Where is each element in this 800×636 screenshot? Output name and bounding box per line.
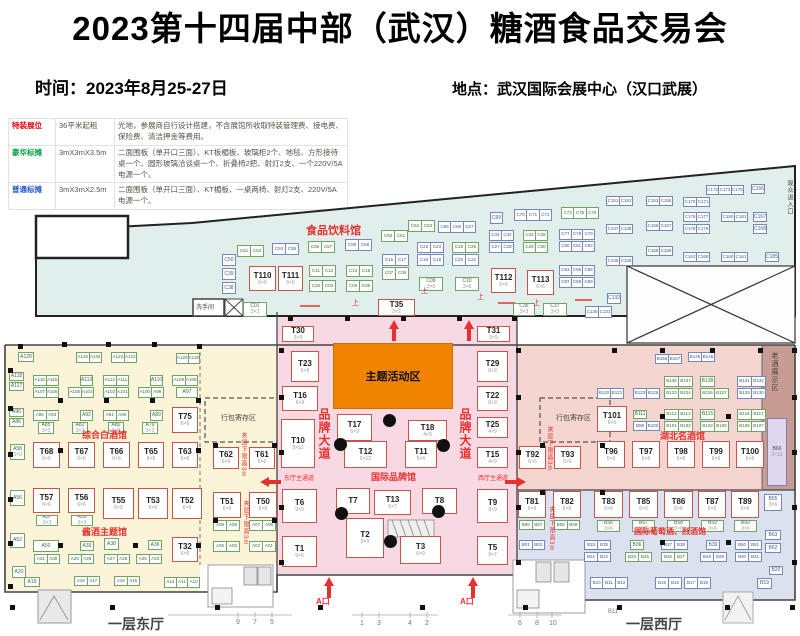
pillar-icon — [420, 605, 425, 610]
pillar-icon — [152, 342, 157, 347]
map-label: 1 — [360, 620, 364, 627]
booth-C51-C52: C51C52 — [237, 245, 264, 257]
booth-T30: T303×9 — [282, 326, 314, 342]
booth-A31-A30: A31A30 — [34, 554, 60, 564]
booth-T66: T666×6 — [103, 442, 130, 468]
pillar-icon — [516, 348, 521, 353]
booth-T1: T19×6 — [282, 536, 317, 567]
booth-A117: A117 — [9, 382, 24, 391]
booth-B33-B35: B33B35 — [584, 540, 611, 550]
map-label: A口 — [460, 598, 474, 606]
booth-C69: C69 — [490, 212, 503, 224]
booth-B62: B62 — [765, 543, 781, 553]
map-label: 夹层下限高3m — [240, 432, 246, 477]
booth-T62: T626×6 — [213, 447, 239, 469]
booth-T11: T116×6 — [405, 441, 437, 468]
booth-C80-C81-C82: C80C81C82 — [559, 241, 595, 252]
pillar-icon — [660, 414, 665, 419]
booth-A50: A50 — [33, 540, 59, 552]
booth-T23: T236×9 — [291, 351, 319, 382]
booth-C168: C168 — [753, 224, 767, 234]
booth-C53-C55: C53C55 — [272, 243, 299, 255]
map-label: 夹层下限高3m — [242, 500, 248, 545]
booth-C158-C159: C158C159 — [646, 246, 673, 256]
booth-A39: A39 — [80, 541, 94, 551]
booth-A113: A113 — [80, 375, 93, 386]
booth-A109-A108: A109A108 — [172, 375, 198, 386]
booth-A36: A36 — [148, 540, 162, 550]
booth-T51: T516×6 — [213, 492, 241, 518]
pillar-icon — [62, 342, 67, 347]
map-label: 湖北名酒馆 — [660, 432, 705, 441]
map-label: 一层西厅 — [626, 617, 682, 631]
booth-C166: C166 — [751, 184, 765, 194]
booth-C163-C165: C163C165 — [683, 252, 710, 262]
booth-A116-A115: A116A115 — [33, 375, 59, 386]
map-label: 行包寄存区 — [556, 415, 591, 422]
pillar-icon — [8, 584, 13, 589]
map-label: 7 — [253, 619, 257, 626]
booth-A55: A553×3 — [71, 515, 93, 526]
pillar-icon — [279, 348, 284, 353]
booth-T3: T36×9 — [400, 536, 441, 564]
booth-C176-C177: C176C177 — [683, 212, 710, 222]
booth-T16: T166×9 — [282, 386, 318, 411]
booth-A95-A93: A95A93 — [33, 410, 59, 421]
booth-T97: T976×6 — [632, 441, 660, 468]
pillar-icon — [540, 443, 545, 448]
booth-T31: T313×9 — [477, 326, 510, 342]
pillar-icon — [516, 560, 521, 565]
booth-B21-B22: B21B22 — [584, 552, 611, 562]
pillar-icon — [104, 398, 109, 403]
pillar-icon — [540, 490, 545, 495]
floor-plan: 主题活动区 C50C39C38C51C52C53C55C56C57C58C59C… — [0, 160, 800, 636]
booth-T13: T136×7 — [374, 490, 411, 515]
booth-T89: T896×6 — [731, 491, 759, 518]
pillar-icon — [792, 505, 797, 510]
pillar-icon — [196, 543, 201, 548]
pillar-icon — [272, 518, 277, 523]
booth-A123-A122: A123A122 — [111, 352, 137, 363]
booth-B17-B18: B17B18 — [684, 577, 711, 589]
booth-T98: T986×6 — [667, 441, 695, 468]
booth-T63: T636×6 — [172, 442, 198, 468]
booth-T52: T526×9 — [172, 488, 202, 519]
grid-ruler-lines — [168, 612, 562, 618]
pillar-icon — [710, 348, 715, 353]
booth-B99-B100: B99B100 — [633, 421, 660, 431]
map-label: 东厅主通道 — [284, 476, 314, 482]
booth-A05-A03: A05A03 — [213, 541, 240, 552]
direction-arrow-icon — [504, 477, 526, 487]
booth-C77-C78-C79: C77C78C79 — [559, 229, 595, 240]
booth-A126-A125: A126A125 — [76, 352, 102, 363]
booth-C02-C03: C02C03 — [309, 280, 336, 292]
booth-T67: T676×6 — [68, 442, 95, 468]
booth-T17: T176×9 — [337, 414, 372, 441]
booth-C36: C363×3 — [513, 303, 535, 316]
booth-T29: T296×9 — [477, 351, 508, 382]
column-icon — [432, 505, 445, 518]
booth-C170-C171: C170C171 — [683, 197, 710, 207]
booth-C73-C75-C76: C73C75C76 — [561, 207, 599, 219]
map-label: 8 — [535, 620, 539, 627]
booth-C60-C61: C60C61 — [381, 230, 408, 242]
booth-A79: A793×3 — [142, 422, 158, 434]
booth-A92: A92 — [80, 410, 93, 421]
map-label: 4 — [408, 620, 412, 627]
booth-T112: T1126×6 — [491, 268, 516, 293]
booth-C160-C161: C160C161 — [721, 252, 748, 262]
booth-A85: A853×3 — [38, 422, 54, 434]
map-label: 夹层下限高3m — [548, 506, 554, 551]
booth-B133-B134: B133B134 — [664, 388, 693, 399]
map-label: 3 — [377, 620, 381, 627]
booth-B116-B117: B116B117 — [737, 409, 766, 420]
pillar-icon — [279, 560, 284, 565]
booth-T6: T69×9 — [282, 489, 317, 523]
booth-T53: T536×9 — [138, 488, 168, 519]
booth-C11-C12: C11C12 — [309, 265, 336, 277]
booth-T9: T99×9 — [477, 489, 508, 523]
booth-T83: T836×6 — [594, 491, 623, 518]
booth-A27-A26: A27A26 — [104, 554, 130, 564]
booth-B23-B25: B23B25 — [625, 552, 652, 562]
pillar-icon — [512, 316, 517, 321]
pillar-icon — [279, 395, 284, 400]
booth-C87-C88-C89: C87C88C89 — [559, 277, 595, 288]
booth-A118: A118 — [9, 372, 24, 381]
map-label: 5 — [270, 619, 274, 626]
booth-C151-C152: C151C152 — [606, 196, 633, 206]
pillar-icon — [58, 543, 63, 548]
pillar-icon — [8, 406, 13, 411]
booth-C156-C157: C156C157 — [646, 221, 673, 231]
booth-T75: T756×6 — [172, 407, 198, 433]
column-icon — [383, 414, 396, 427]
booth-C16-C17: C16C17 — [382, 254, 409, 266]
booth-B60: B603×6 — [734, 520, 757, 532]
pillar-icon — [8, 368, 13, 373]
pillar-icon — [792, 348, 797, 353]
direction-arrow-icon — [468, 577, 478, 599]
pillar-icon — [110, 605, 115, 610]
pillar-icon — [279, 450, 284, 455]
booth-T82: T826×6 — [553, 491, 581, 518]
pillar-icon — [758, 348, 763, 353]
booth-C70-C71-C72: C70C71C72 — [514, 209, 552, 221]
pillar-icon — [106, 342, 111, 347]
booth-T113: T1136×6 — [527, 270, 554, 295]
booth-B28-B29: B28B29 — [700, 552, 727, 562]
pillar-icon — [213, 443, 218, 448]
booth-B136-B137: B136B137 — [664, 376, 693, 387]
booth-C65-C66-C67: C65C66C67 — [438, 221, 476, 233]
column-icon — [437, 439, 450, 452]
pillar-icon — [133, 543, 138, 548]
east-core-rooms — [208, 565, 273, 607]
booth-T85: T856×6 — [629, 491, 658, 518]
booth-T55: T556×9 — [103, 488, 134, 519]
booth-A128: A128 — [18, 352, 34, 362]
booth-A02-A01: A02A01 — [249, 541, 276, 552]
pillar-icon — [660, 540, 665, 545]
pillar-icon — [792, 450, 797, 455]
pillar-icon — [792, 395, 797, 400]
cross-box-small — [225, 299, 243, 316]
booth-T35: T352×2 — [378, 299, 415, 316]
pillar-icon — [58, 398, 63, 403]
map-label: 上 — [477, 294, 484, 301]
booth-C130-C131: C130C131 — [585, 306, 612, 318]
pillar-icon — [196, 398, 201, 403]
booth-C29-C30: C29C30 — [523, 242, 548, 253]
direction-arrow-icon — [389, 320, 399, 342]
booth-C07-C08: C07C08 — [382, 267, 409, 280]
pillar-icon — [457, 316, 462, 321]
map-label: 食品饮料馆 — [306, 226, 361, 237]
booth-T5: T59×7 — [477, 536, 508, 565]
booth-T2: T29×9 — [346, 518, 384, 558]
booth-B112-B113: B112B113 — [664, 409, 693, 420]
booth-C13-C15: C13C15 — [346, 265, 373, 277]
booth-C38: C38 — [222, 282, 236, 294]
booth-T65: T656×6 — [138, 442, 164, 468]
booth-A102-A101: A102A101 — [103, 387, 129, 398]
pillar-icon — [523, 605, 528, 610]
booth-C153-C155: C153C155 — [646, 196, 673, 206]
booth-A12-A11-A10: A12A11A10 — [164, 577, 200, 588]
map-label: 酱酒主题馆 — [82, 528, 127, 537]
booth-B36: B36 — [630, 540, 644, 550]
booth-T87: T876×6 — [698, 491, 726, 518]
pillar-icon — [660, 348, 665, 353]
booth-B111: B111 — [633, 410, 647, 419]
pillar-icon — [725, 605, 730, 610]
booth-C137-C138: C137C138 — [606, 224, 633, 234]
booth-T111: T1116×6 — [278, 266, 303, 291]
pillar-icon — [792, 560, 797, 565]
booth-C83-C85-C86: C83C85C86 — [559, 265, 595, 276]
pillar-icon — [318, 605, 323, 610]
booth-A29-A28: A29A28 — [68, 554, 94, 564]
booth-C39: C39 — [222, 268, 236, 280]
booth-C22-C23: C22C23 — [417, 242, 444, 253]
map-label: 夹层下限高3m — [546, 426, 552, 471]
map-label: 9 — [236, 619, 240, 626]
booth-T22: T226×9 — [477, 386, 508, 411]
map-label: 观众进入口 — [786, 180, 792, 215]
booth-B20: B20 — [769, 566, 783, 575]
pillar-icon — [612, 348, 617, 353]
booth-B129-B130: B129B130 — [737, 388, 766, 399]
column-icon — [334, 438, 347, 451]
pillar-icon — [215, 605, 220, 610]
booth-C58-C59: C58C59 — [345, 239, 372, 251]
booth-T93: T936×6 — [554, 446, 581, 469]
pillar-icon — [10, 605, 15, 610]
booth-A86: A86 — [9, 418, 24, 427]
main-activity-zone: 主题活动区 — [333, 343, 453, 409]
pillar-icon — [150, 398, 155, 403]
booth-T81: T816×6 — [518, 491, 546, 518]
map-label: 上 — [352, 300, 359, 307]
booth-B10-B11-B12: B10B11B12 — [590, 577, 628, 589]
booth-A120-A119: A120A119 — [176, 353, 200, 364]
booth-B15-B16: B15B16 — [655, 577, 682, 589]
booth-C50: C50 — [222, 254, 236, 266]
booth-A89: A89 — [150, 410, 163, 421]
booth-C62-C63: C62C63 — [408, 220, 435, 232]
booth-B145-B146: B145B146 — [688, 352, 715, 362]
pillar-icon — [790, 605, 795, 610]
pillar-icon — [196, 448, 201, 453]
booth-B115: B115 — [700, 409, 715, 420]
booth-C167: C167 — [753, 212, 767, 222]
booth-B156-B157: B156B157 — [655, 354, 682, 364]
column-icon — [384, 535, 397, 548]
map-label: 10 — [549, 620, 557, 627]
map-label: 6 — [518, 620, 522, 627]
escalator-icon — [388, 520, 434, 537]
booth-B06-B07: B06B07 — [519, 520, 545, 530]
booth-C172-C173-C175: C172C173C175 — [706, 185, 744, 195]
booth-T10: T109×12 — [281, 419, 315, 468]
booth-A97: A97 — [176, 387, 198, 398]
map-label: 一层东厅 — [108, 617, 164, 631]
booth-B50-B51: B50B51 — [735, 540, 762, 550]
booth-T32: T326×6 — [172, 537, 198, 562]
pillar-icon — [8, 541, 13, 546]
booth-C185: C185 — [765, 252, 779, 262]
booth-C05-C06: C05C06 — [346, 280, 373, 292]
booth-C25-C26: C25C26 — [452, 242, 479, 253]
map-label: 上 — [533, 300, 540, 307]
booth-T86: T866×6 — [664, 491, 693, 518]
booth-T57: T576×6 — [33, 488, 60, 513]
booth-C27-C28: C27C28 — [489, 242, 514, 253]
pillar-icon — [8, 497, 13, 502]
booth-B37-B38: B37B38 — [661, 540, 688, 550]
booth-C31-C32: C31C32 — [489, 230, 514, 241]
booth-C33-C35: C33C35 — [523, 230, 548, 241]
booth-B138: B138 — [700, 376, 715, 387]
booth-B123-B125: B123B125 — [633, 388, 660, 399]
booth-T61: T616×6 — [249, 447, 275, 469]
booth-T92: T926×6 — [519, 446, 546, 469]
food-hall-room — [36, 216, 128, 258]
booth-T99: T996×6 — [702, 441, 730, 468]
pillar-icon — [726, 540, 731, 545]
map-label: 国际葡萄酒、烈酒馆 — [634, 528, 706, 536]
map-label: 国际品牌馆 — [371, 473, 416, 482]
pillar-icon — [600, 490, 605, 495]
booth-T110: T1106×6 — [249, 266, 276, 291]
booth-A57: A573×3 — [36, 515, 58, 526]
pillar-icon — [726, 414, 731, 419]
pillar-icon — [58, 448, 63, 453]
booth-C132: C132 — [607, 293, 621, 304]
exhibition-map-page: 2023第十四届中部（武汉）糖酒食品交易会 时间：2023年8月25-27日 地… — [0, 0, 800, 636]
pillar-icon — [600, 443, 605, 448]
booth-T50: T506×6 — [249, 492, 277, 518]
pillar-icon — [272, 443, 277, 448]
pillar-icon — [516, 505, 521, 510]
east-entrance-canopy — [38, 590, 71, 623]
pillar-icon — [279, 505, 284, 510]
booth-C18-C19: C18C19 — [417, 254, 444, 266]
booth-B63: B63 — [765, 530, 781, 540]
booth-A91-A90: A91A90 — [103, 410, 129, 421]
pillar-icon — [18, 344, 23, 349]
booth-B106-B107: B106B107 — [737, 421, 766, 432]
booth-C135-C136: C135C136 — [606, 256, 633, 266]
booth-C180-C181: C180C181 — [721, 212, 748, 222]
booth-A19: A19 — [24, 577, 40, 587]
booth-A100-A99: A100A99 — [138, 387, 164, 398]
map-label: 品牌大道 — [459, 408, 471, 460]
construction-area-icon — [627, 266, 795, 343]
booth-B26-B27: B26B27 — [661, 552, 688, 562]
booth-C56-C57: C56C57 — [308, 241, 335, 253]
column-icon — [335, 507, 348, 520]
booth-B131-B132: B131B132 — [737, 376, 766, 387]
direction-arrow-icon — [260, 477, 282, 487]
map-label: 品牌大道 — [318, 408, 330, 460]
booth-B66: B663×12 — [767, 418, 787, 486]
booth-B120-B121: B120B121 — [597, 388, 624, 399]
pillar-icon — [213, 518, 218, 523]
pillar-icon — [8, 452, 13, 457]
booth-A105-A103: A105A103 — [68, 387, 94, 398]
booth-C20-C21: C20C21 — [452, 254, 479, 266]
booth-A112-A111: A112A111 — [103, 375, 129, 386]
booth-T101: T1016×6 — [597, 406, 627, 432]
booth-B30-B31: B30B31 — [735, 552, 762, 562]
booth-A18-A17: A18A17 — [74, 576, 100, 586]
booth-A110: A110 — [150, 375, 163, 386]
booth-C178-C179: C178C179 — [683, 224, 710, 234]
pillar-icon — [345, 316, 350, 321]
direction-arrow-icon — [464, 320, 474, 342]
booth-T18: T184×9 — [408, 420, 447, 441]
pillar-icon — [197, 344, 202, 349]
direction-arrow-icon — [324, 577, 334, 599]
pillar-icon — [516, 395, 521, 400]
map-label: 洗手间 — [196, 305, 214, 311]
booth-T15: T154×9 — [477, 447, 508, 468]
booth-T68: T686×6 — [33, 442, 60, 468]
pillar-icon — [516, 450, 521, 455]
booth-B08-B09: B08B09 — [554, 520, 580, 530]
booth-T25: T254×9 — [477, 417, 508, 438]
booth-C01: C013×3 — [243, 302, 267, 317]
map-label: 2 — [425, 620, 429, 627]
booth-T56: T566×6 — [68, 488, 95, 513]
booth-A107-A106: A107A106 — [33, 387, 59, 398]
booth-B56: B563×6 — [597, 520, 620, 532]
booth-T12: T126×12 — [344, 441, 387, 468]
booth-A38: A38 — [104, 538, 119, 550]
booth-B55: B553×6 — [764, 494, 782, 511]
booth-B01-B02: B01B02 — [519, 540, 545, 550]
booth-C37: C373×3 — [543, 303, 567, 316]
booth-B126-B127: B126B127 — [700, 388, 729, 399]
pillar-icon — [288, 316, 293, 321]
booth-T100: T1006×6 — [736, 441, 764, 468]
booth-C10: C103×6 — [455, 277, 479, 291]
